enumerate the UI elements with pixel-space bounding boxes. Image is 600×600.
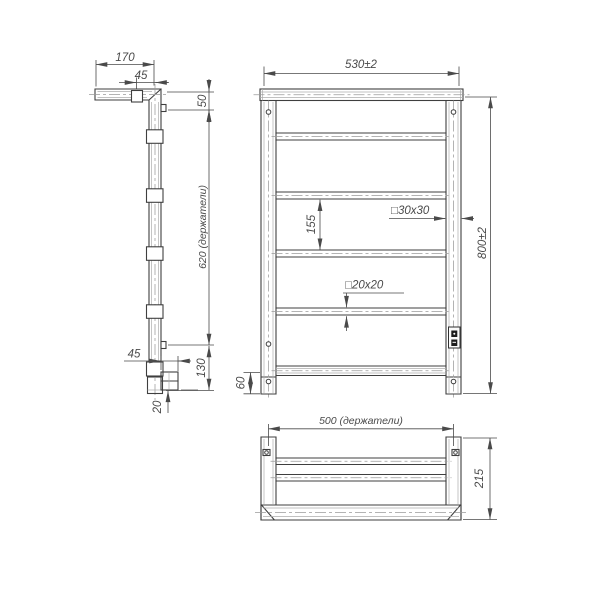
dim-front-bottom-gap-label: 60 xyxy=(236,376,248,389)
top-rails xyxy=(271,458,452,481)
drawing-canvas: 170 45 50 620 (держатели) 130 xyxy=(0,0,600,600)
dim-top-depth-label: 215 xyxy=(474,468,486,489)
side-view: 170 45 50 620 (держатели) 130 xyxy=(89,52,214,414)
side-arm-holder xyxy=(132,91,143,103)
front-left-post xyxy=(261,101,276,400)
dim-front-rail-gap-label: 155 xyxy=(306,214,318,234)
dim-front-width-label: 530±2 xyxy=(345,59,377,71)
dim-side-foot-label: 20 xyxy=(152,400,164,414)
side-top-arm xyxy=(89,89,168,100)
label-rail-profile: □20x20 xyxy=(343,280,404,332)
dim-side-bottom-bracket-label: 130 xyxy=(196,358,208,378)
front-top-bar xyxy=(254,89,470,101)
dim-front-width: 530±2 xyxy=(264,59,459,86)
dim-side-bottom-bracket: 130 xyxy=(166,346,214,391)
dim-side-top-bracket-label: 50 xyxy=(197,94,209,107)
top-front-bar xyxy=(255,505,467,520)
dim-top-depth: 215 xyxy=(463,438,497,520)
technical-drawing: 170 45 50 620 (держатели) 130 xyxy=(0,0,600,600)
brand-badge xyxy=(449,327,461,348)
front-mounting-holes xyxy=(266,110,456,384)
dim-side-bottom-holder-label: 45 xyxy=(128,349,141,361)
dim-front-height-label: 800±2 xyxy=(477,226,489,258)
dim-side-top-holder: 45 xyxy=(119,70,169,89)
label-frame-profile-text: □30x30 xyxy=(391,205,430,217)
dim-front-rail-gap: 155 xyxy=(306,200,320,250)
dim-side-holders-span-label: 620 (держатели) xyxy=(197,185,209,269)
front-rails xyxy=(272,133,451,376)
top-view: 500 (держатели) 215 xyxy=(255,415,497,520)
dim-top-holders-span-label: 500 (держатели) xyxy=(319,415,403,427)
top-wall-tabs xyxy=(263,450,459,456)
dim-front-height: 800±2 xyxy=(463,97,497,394)
side-bottom-bracket xyxy=(161,372,178,390)
side-bottom-wall-tab xyxy=(161,342,166,349)
label-rail-profile-text: □20x20 xyxy=(345,280,384,292)
dim-side-depth-label: 170 xyxy=(115,52,135,64)
dim-side-top-holder-label: 45 xyxy=(135,70,148,82)
side-top-wall-tab xyxy=(161,105,166,112)
dim-front-bottom-gap: 60 xyxy=(236,373,261,394)
front-right-post xyxy=(446,101,461,400)
front-view: 530±2 800±2 155 □30x30 □20x20 60 xyxy=(236,59,498,399)
dim-top-holders-span: 500 (держатели) xyxy=(269,415,454,446)
dim-side-holders-span: 620 (держатели) xyxy=(168,110,214,345)
dim-side-top-bracket: 50 xyxy=(167,79,214,123)
